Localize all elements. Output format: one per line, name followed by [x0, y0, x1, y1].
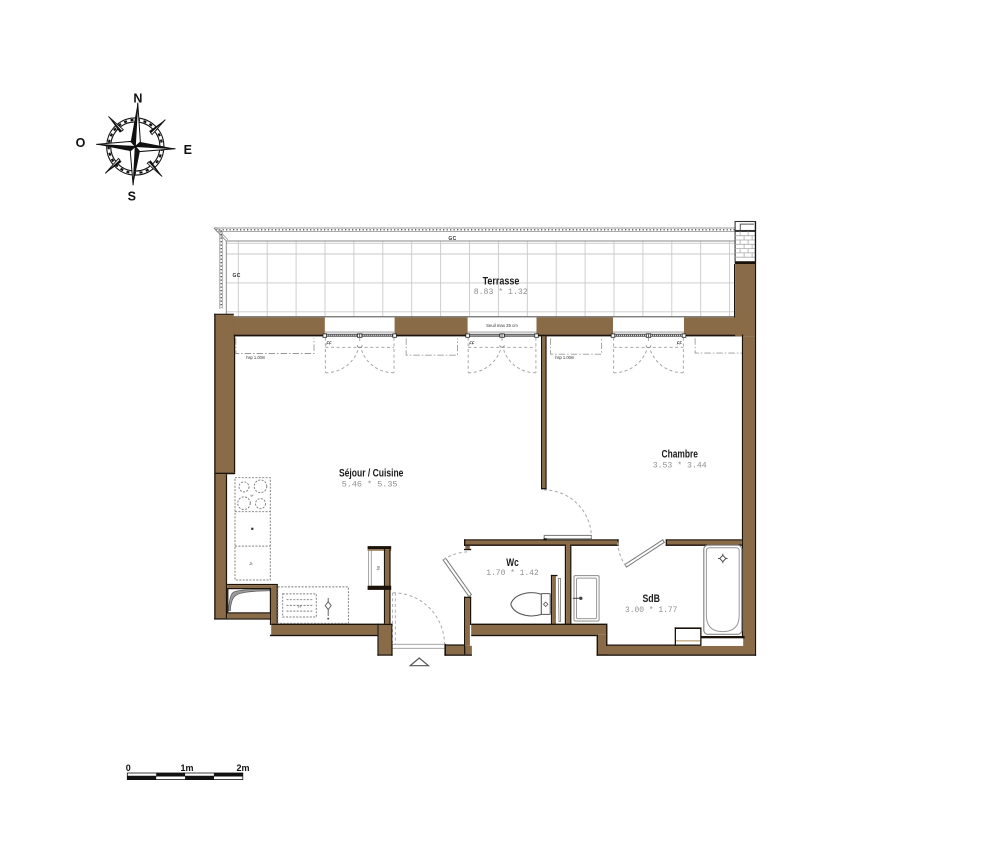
svg-text:Chambre: Chambre: [662, 448, 698, 460]
svg-text:O: O: [76, 136, 86, 150]
svg-text:q: q: [249, 495, 253, 497]
svg-text:ta: ta: [376, 566, 381, 570]
svg-text:1m: 1m: [180, 763, 193, 773]
svg-text:FF: FF: [677, 341, 683, 346]
svg-text:hsp 1.00m: hsp 1.00m: [555, 355, 575, 360]
svg-text:N: N: [133, 91, 142, 105]
svg-text:hsp 1.00m: hsp 1.00m: [246, 355, 266, 360]
svg-text:Séjour / Cuisine: Séjour / Cuisine: [339, 468, 403, 480]
svg-text:8.83 * 1.32: 8.83 * 1.32: [474, 287, 528, 297]
svg-text:E: E: [184, 143, 192, 157]
svg-text:3.53 * 3.44: 3.53 * 3.44: [653, 460, 707, 470]
svg-text:FF: FF: [326, 341, 332, 346]
svg-text:S: S: [128, 189, 136, 203]
svg-text:FF: FF: [469, 341, 475, 346]
svg-text:ev: ev: [298, 605, 302, 609]
svg-text:1.70 * 1.42: 1.70 * 1.42: [486, 568, 539, 578]
svg-text:3.00 * 1.77: 3.00 * 1.77: [625, 605, 678, 615]
svg-text:GC: GC: [448, 236, 456, 242]
svg-text:2m: 2m: [236, 763, 249, 773]
svg-text:Terrasse: Terrasse: [483, 275, 520, 287]
svg-text:SdB: SdB: [642, 593, 660, 605]
svg-text:Seuil max 25 cm: Seuil max 25 cm: [486, 323, 518, 328]
svg-text:0: 0: [126, 763, 131, 773]
svg-text:5.46 * 5.35: 5.46 * 5.35: [342, 480, 398, 490]
svg-text:GC: GC: [232, 273, 240, 279]
